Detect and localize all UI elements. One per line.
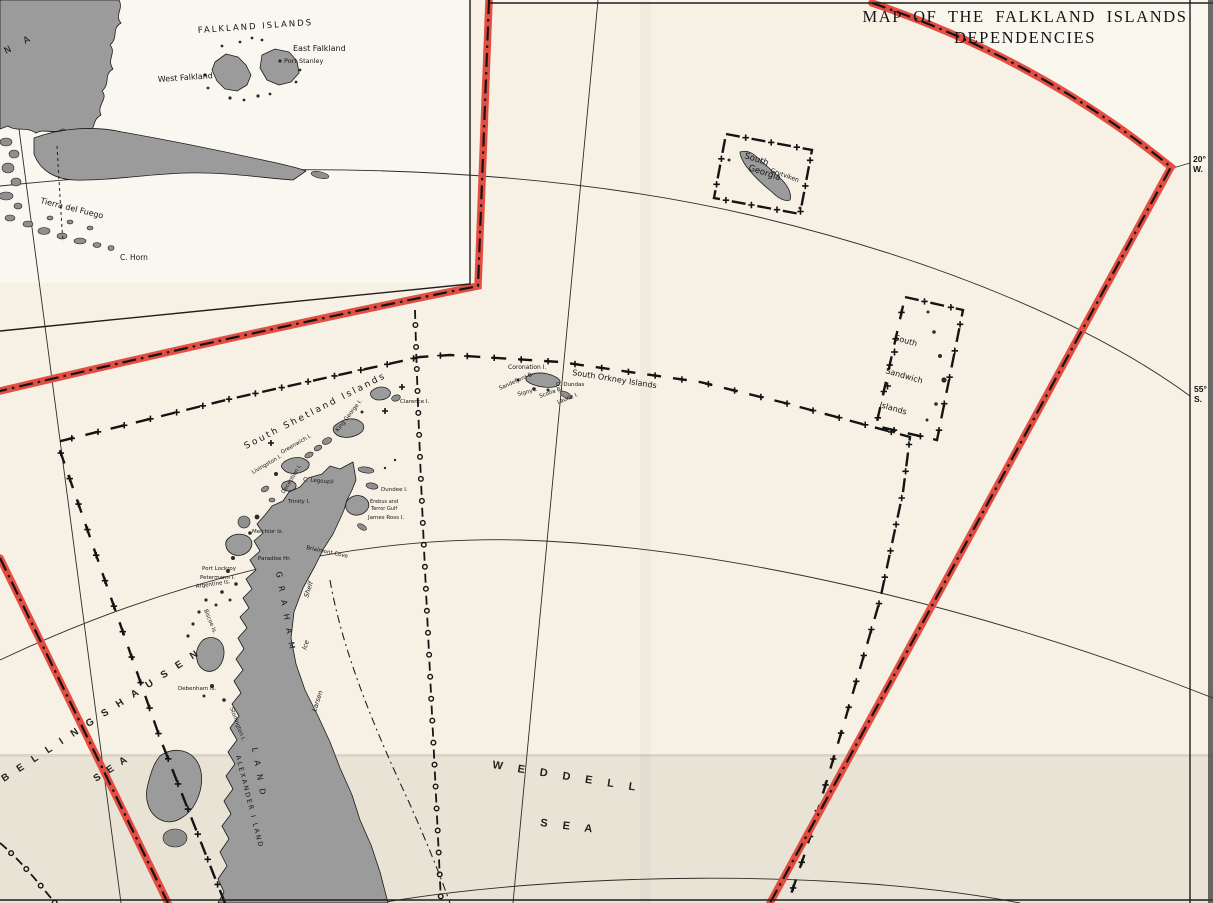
cross-mark [437, 352, 443, 358]
label-south-shetland: South Shetland Islands [243, 371, 389, 452]
circle-mark [417, 433, 422, 438]
cross-mark [713, 181, 719, 187]
label-cape-dundas: C. Dundas [556, 382, 584, 388]
cross-mark [155, 730, 161, 736]
stonington-island-dot [222, 698, 226, 702]
circle-mark [429, 696, 434, 701]
cross-mark [810, 407, 816, 413]
map-title: MAP OF THE FALKLAND ISLANDS DEPENDENCIES [858, 6, 1192, 49]
cross-mark [464, 353, 470, 359]
circle-mark [427, 652, 432, 657]
label-cape-horn: C. Horn [120, 253, 148, 262]
brabant-island [238, 516, 250, 528]
cross-mark [718, 156, 724, 162]
circle-mark [422, 543, 427, 548]
cross-mark [69, 435, 75, 441]
map-title-line1: MAP OF THE FALKLAND ISLANDS [858, 6, 1192, 27]
cross-mark [111, 603, 117, 609]
cross-mark [652, 372, 658, 378]
label-port-stanley: Port Stanley [284, 57, 324, 65]
label-lon-hemisphere: W. [1193, 164, 1203, 174]
cross-mark [705, 381, 711, 387]
cross-mark [84, 526, 90, 532]
cape-horn-islet [108, 246, 114, 251]
snow-hill-island [356, 522, 367, 531]
cross-mark [794, 144, 800, 150]
cross-mark [102, 578, 108, 584]
cross-mark [200, 403, 206, 409]
cross-mark [491, 355, 497, 361]
cross-mark [723, 197, 729, 203]
cross-mark [518, 356, 524, 362]
cross-mark [748, 202, 754, 208]
scan-edge-right [1208, 0, 1213, 903]
cross-mark [893, 521, 899, 527]
cross-mark [952, 348, 958, 354]
circle-mark [426, 630, 431, 635]
cross-mark [279, 384, 285, 390]
circle-mark [420, 499, 425, 504]
label-debenham: Debenham Is. [178, 686, 216, 692]
circle-mark [421, 521, 426, 526]
cross-mark [797, 208, 803, 214]
label-erebus-2: Terror Gulf [370, 506, 397, 512]
cross-mark [93, 552, 99, 558]
cross-mark [784, 400, 790, 406]
cross-mark [861, 652, 867, 658]
cross-mark [226, 396, 232, 402]
cross-mark [67, 475, 73, 481]
cross-mark [679, 376, 685, 382]
cross-mark [58, 450, 64, 456]
cross-mark [173, 409, 179, 415]
label-lon-value: 20° [1193, 154, 1206, 164]
label-lat-value: 55° [1194, 384, 1207, 394]
cross-mark [846, 704, 852, 710]
circle-mark [431, 740, 436, 745]
label-east-falkland: East Falkland [293, 44, 346, 53]
cross-mark [917, 433, 923, 439]
cross-mark [731, 387, 737, 393]
cross-mark [906, 441, 912, 447]
parallel-60s [0, 540, 1213, 698]
port-stanley-dot [278, 59, 281, 62]
label-port-lockroy: Port Lockroy [202, 566, 237, 572]
circle-mark [414, 345, 419, 350]
label-biscoe: Biscoe Is. [202, 609, 217, 636]
cross-mark [599, 365, 605, 371]
cross-mark [625, 369, 631, 375]
cross-mark [802, 183, 808, 189]
label-dundee: Dundee I. [381, 487, 408, 493]
label-larsen-ice: Ice [300, 639, 311, 651]
cross-mark [936, 427, 942, 433]
elephant-island [371, 387, 391, 400]
anvers-island [226, 534, 252, 555]
label-signy: Signy I. [517, 387, 538, 398]
cross-mark [902, 468, 908, 474]
fold-crease-vertical [640, 0, 651, 903]
cross-mark [941, 401, 947, 407]
cross-mark [768, 139, 774, 145]
label-south-sandwich-2: Sandwich [884, 366, 923, 385]
cross-mark [898, 309, 904, 315]
cross-mark [129, 654, 135, 660]
circle-mark [415, 389, 420, 394]
cross-mark [743, 135, 749, 141]
cross-mark [921, 298, 927, 304]
label-coronation: Coronation I. [508, 364, 547, 371]
label-greenwich: Greenwich I. [280, 433, 313, 455]
cross-mark [572, 361, 578, 367]
cross-mark [876, 600, 882, 606]
circle-mark [419, 477, 424, 482]
label-lat-hemisphere: S. [1194, 394, 1202, 404]
cross-mark [252, 390, 258, 396]
map-canvas: FALKLAND ISLANDS West Falkland East Falk… [0, 0, 1213, 903]
label-paradise: Paradise Hr. [258, 556, 291, 562]
dundee-island [366, 482, 379, 490]
circle-mark [425, 609, 430, 614]
circle-mark [424, 587, 429, 592]
label-south-sandwich-1: South [893, 333, 918, 348]
label-melchior: Melchior Is. [252, 529, 284, 535]
cross-mark [899, 495, 905, 501]
cross-mark [147, 416, 153, 422]
cross-mark [948, 304, 954, 310]
biscoe-islets [191, 622, 194, 625]
cross-mark [331, 373, 337, 379]
cross-mark [946, 374, 952, 380]
cross-mark [774, 207, 780, 213]
cross-mark [862, 422, 868, 428]
cross-mark [120, 629, 126, 635]
label-south-sandwich-3: Islands [878, 400, 907, 416]
cross-mark [881, 388, 887, 394]
label-james-ross: James Ross I. [367, 515, 404, 521]
scanned-map-page: { "title": {"line1": "MAP OF THE FALKLAN… [0, 0, 1213, 903]
cross-mark [882, 574, 888, 580]
label-trinity: Trinity I. [287, 499, 310, 505]
cross-mark [146, 705, 152, 711]
cross-mark [838, 730, 844, 736]
label-clarence: Clarence I. [400, 399, 430, 405]
circle-mark [413, 323, 418, 328]
cross-mark [305, 379, 311, 385]
label-erebus-1: Erebus and [370, 499, 398, 505]
cross-mark [887, 548, 893, 554]
circle-mark [430, 718, 435, 723]
circle-mark [428, 674, 433, 679]
cross-mark [853, 678, 859, 684]
circle-mark [415, 367, 420, 372]
map-title-line2: DEPENDENCIES [858, 27, 1192, 48]
label-larsen: Larsen [310, 689, 324, 712]
circle-mark [423, 565, 428, 570]
cross-mark [358, 367, 364, 373]
joinville-island [358, 466, 375, 474]
label-livingston: Livingston I. [251, 454, 283, 476]
cross-mark [836, 415, 842, 421]
cross-mark [758, 394, 764, 400]
cross-mark [957, 321, 963, 327]
cross-mark [807, 157, 813, 163]
cross-mark [384, 361, 390, 367]
cross-mark [875, 415, 881, 421]
cross-mark [75, 501, 81, 507]
greenwich-island [304, 451, 314, 459]
cross-mark [868, 626, 874, 632]
cross-mark [95, 429, 101, 435]
circle-mark [418, 455, 423, 460]
cross-mark [121, 422, 127, 428]
james-ross-island [346, 496, 369, 516]
circle-mark [416, 411, 421, 416]
